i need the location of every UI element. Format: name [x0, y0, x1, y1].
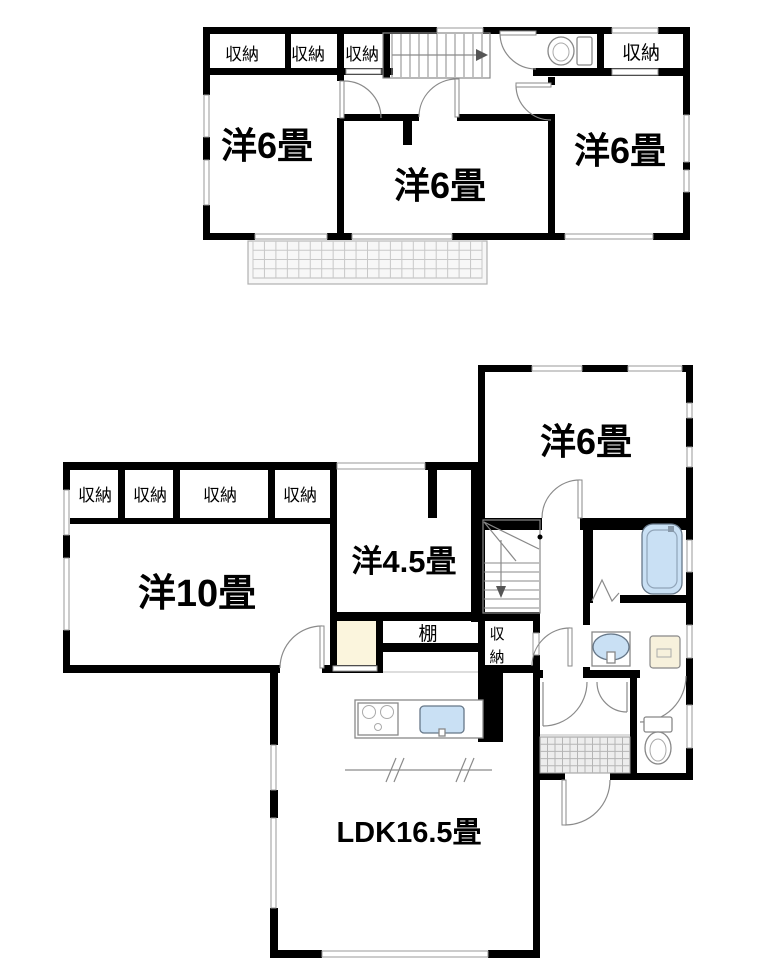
- f2-room-center-label: 洋6畳: [394, 165, 486, 206]
- f2-closet2-label: 収納: [291, 45, 325, 64]
- f1-closet4-label: 収納: [283, 486, 317, 505]
- f1-room-west-label: 洋10畳: [138, 573, 256, 615]
- f2-closet1-label: 収納: [225, 45, 259, 64]
- floor-plan: 収納 収納 収納 収納 洋6畳 洋6畳 洋6畳: [0, 0, 768, 977]
- staircase-2f: [383, 33, 490, 78]
- f1-stair-closet-label-2: 納: [489, 649, 504, 666]
- handrail-post-dot: [538, 535, 543, 540]
- hall-closet-fill: [337, 621, 376, 665]
- stair-treads-1f: [484, 563, 539, 608]
- f2-room-left-label: 洋6畳: [221, 125, 313, 166]
- f1-closet3-label: 収納: [203, 486, 237, 505]
- toilet-1f-icon: [644, 717, 672, 764]
- f1-stair-closet-label-1: 収: [489, 626, 504, 643]
- bath-folding-door-icon: [592, 580, 619, 601]
- balcony: [248, 241, 487, 284]
- f1-closet2-label: 収納: [133, 486, 167, 505]
- stair-down-arrow-icon: [496, 586, 506, 598]
- f1-closet1-label: 収納: [78, 486, 112, 505]
- genkan-entrance: [540, 735, 630, 773]
- bathtub-icon: [642, 524, 682, 594]
- kitchen-counter: [355, 700, 483, 738]
- floor1-plan: 収納 収納 収納 収納 洋10畳 洋4.5畳 洋6畳 棚 収 納 LDK16.5…: [63, 365, 693, 958]
- toilet-2f-icon: [548, 37, 592, 65]
- f1-room-mid-label: 洋4.5畳: [351, 544, 456, 579]
- opening-break-marks: [345, 758, 492, 782]
- balcony-grid: [253, 241, 482, 278]
- stove-icon: [358, 703, 398, 735]
- staircase-1f: [483, 520, 543, 613]
- floor2-plan: 収納 収納 収納 収納 洋6畳 洋6畳 洋6畳: [203, 27, 690, 284]
- washing-machine-icon: [650, 636, 680, 668]
- floor-plan-canvas: 収納 収納 収納 収納 洋6畳 洋6畳 洋6畳: [0, 0, 768, 977]
- washbasin-icon: [592, 632, 630, 666]
- f1-shelf-label: 棚: [418, 623, 437, 645]
- kitchen-sink-icon: [420, 706, 464, 736]
- f2-room-right-label: 洋6畳: [574, 130, 666, 171]
- f1-room-east-label: 洋6畳: [540, 421, 632, 462]
- f2-closet4-label: 収納: [622, 42, 660, 64]
- f2-closet3-label: 収納: [345, 45, 379, 64]
- f1-ldk-label: LDK16.5畳: [336, 817, 481, 849]
